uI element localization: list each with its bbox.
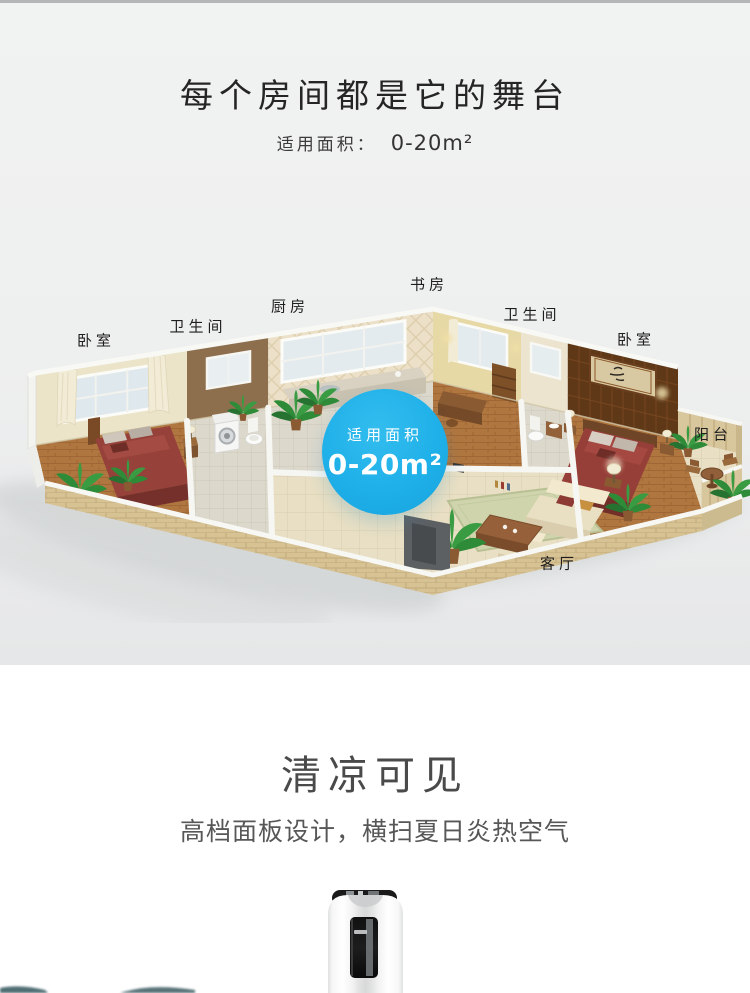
hero-section: 每个房间都是它的舞台 适用面积： 0-20m² (0, 0, 750, 665)
room-label-bedroom-right: 卧室 (617, 329, 655, 350)
next-section-peek (0, 983, 200, 993)
area-value: 0-20m² (391, 131, 474, 155)
product-detail-page: 每个房间都是它的舞台 适用面积： 0-20m² (0, 0, 750, 993)
area-label: 适用面积： (277, 130, 377, 155)
room-label-living-room: 客厅 (540, 553, 578, 574)
cooling-subtitle: 高档面板设计，横扫夏日炎热空气 (0, 812, 750, 848)
room-label-kitchen: 厨房 (271, 296, 309, 317)
air-conditioner-image (320, 889, 412, 993)
ac-front-panel (350, 917, 378, 978)
room-label-bathroom-right: 卫生间 (503, 304, 560, 325)
room-label-balcony: 阳台 (694, 424, 732, 445)
area-badge: 适用面积 0-20m² (322, 389, 448, 515)
area-badge-value: 0-20m² (328, 448, 443, 481)
floorplan-illustration: 卧室 卫生间 厨房 书房 卫生间 卧室 阳台 客厅 适用面积 0-20m² (0, 243, 750, 623)
room-label-study: 书房 (410, 274, 448, 295)
cooling-title: 清凉可见 (0, 743, 750, 801)
cooling-section: 清凉可见 高档面板设计，横扫夏日炎热空气 (0, 665, 750, 993)
brand-logo (354, 930, 367, 934)
area-subtitle: 适用面积： 0-20m² (0, 130, 750, 155)
entry-doorway (404, 515, 450, 571)
room-label-bedroom-left: 卧室 (77, 330, 115, 351)
room-label-bathroom-left: 卫生间 (169, 316, 226, 337)
area-badge-label: 适用面积 (347, 424, 423, 445)
page-title: 每个房间都是它的舞台 (0, 69, 750, 117)
